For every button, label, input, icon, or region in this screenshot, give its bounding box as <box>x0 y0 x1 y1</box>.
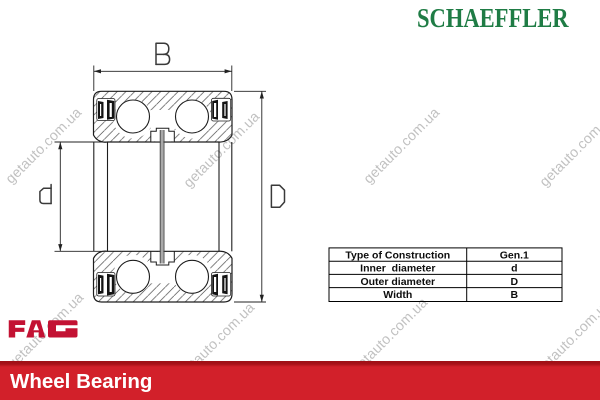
svg-text:Type of Construction: Type of Construction <box>345 250 450 262</box>
svg-text:Inner diameter: Inner diameter <box>360 263 435 275</box>
svg-text:Width: Width <box>383 289 412 301</box>
svg-text:Outer diameter: Outer diameter <box>360 276 435 288</box>
svg-text:B: B <box>511 289 519 301</box>
svg-text:Gen.1: Gen.1 <box>500 250 529 262</box>
svg-text:d: d <box>511 263 517 275</box>
svg-text:D: D <box>511 276 519 288</box>
